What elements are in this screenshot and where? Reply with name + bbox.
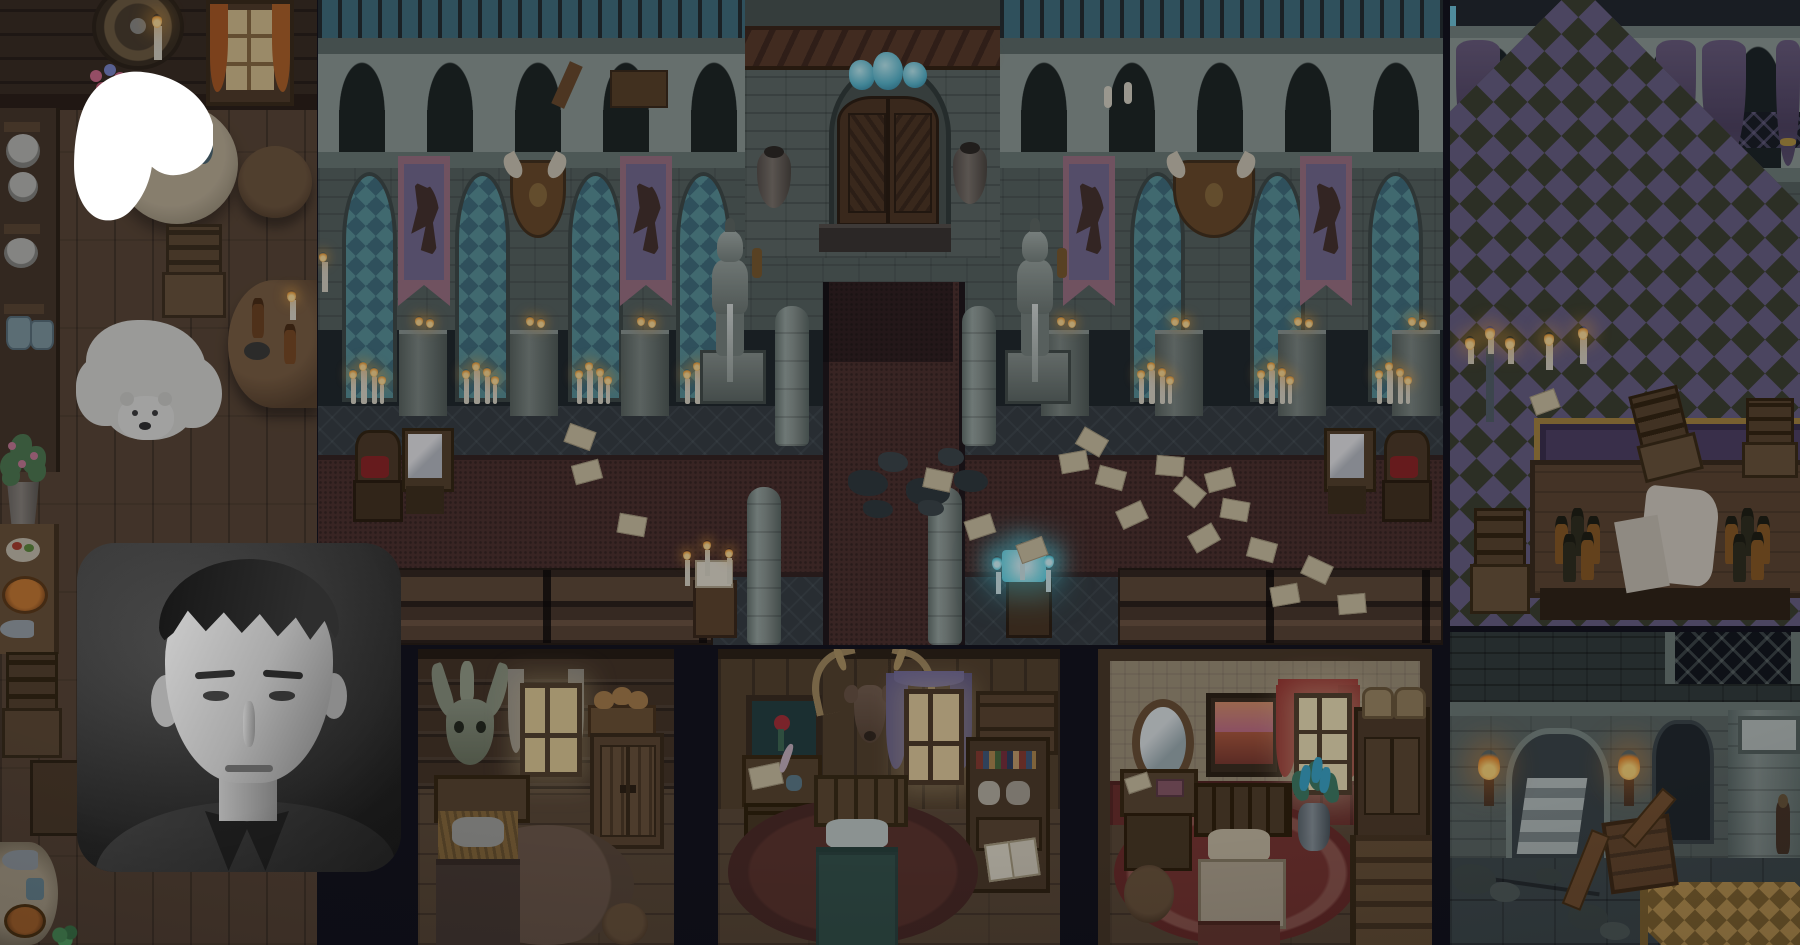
tavern-window-panes (226, 10, 274, 90)
tavern-table-bottom (0, 842, 58, 945)
knight-mace (752, 248, 762, 278)
hall-candlestick (1139, 378, 1144, 404)
hall-candlestick (493, 384, 497, 404)
glow-lectern-candle (1046, 570, 1051, 592)
rose-stem (778, 729, 784, 751)
hall-candle-flame (1147, 361, 1155, 371)
knight-helmet (1022, 230, 1048, 262)
stag-open-book (984, 838, 1038, 879)
hall-wall-pier (399, 330, 447, 416)
hall-wall-pier (621, 330, 669, 416)
hall-window (455, 172, 510, 402)
hall-candle-flame (1385, 361, 1393, 371)
hall-candlestick (1160, 376, 1165, 404)
tavern-wall-candle (154, 26, 162, 60)
tavern-chair2-back (6, 652, 58, 714)
hall-candle-flame (1396, 367, 1404, 377)
lodge-blanket (436, 859, 520, 945)
dungeon-broken-crate (1576, 800, 1668, 896)
hall-tower-urn (757, 150, 791, 208)
tavern-stool (238, 146, 312, 218)
lectern-candle (685, 560, 690, 586)
hall-banner (1063, 156, 1115, 306)
hall-candlestick (598, 376, 603, 404)
hall-candlestick (1259, 378, 1264, 404)
library-drape-tie (1780, 138, 1796, 146)
hall-pillar (775, 306, 809, 446)
lodge-top-beam (418, 649, 674, 659)
tavern-chair2-seat (2, 708, 62, 758)
lectern-flame (725, 548, 733, 558)
bear-rug-ear (120, 392, 134, 406)
lectern-candle (705, 550, 710, 576)
banner-panel-library (1450, 0, 1800, 626)
tavern-bottle (252, 298, 264, 338)
tavern-chair-2 (0, 652, 62, 764)
tavern-mug (6, 316, 32, 350)
lodge-dragon-skull (432, 663, 508, 767)
hall-candlestick (1288, 384, 1292, 404)
tavern-window (206, 0, 294, 106)
tavern-bear-rug (76, 296, 222, 442)
hall-pier-flame (415, 316, 423, 326)
tavern-shelf-board (4, 304, 44, 314)
tavern-wall-candle-flame (152, 14, 162, 28)
lectern-flame (703, 540, 711, 550)
chairR-back (1746, 398, 1794, 448)
hall-candlestick (1269, 370, 1275, 404)
hall-pier-flame (1294, 316, 1302, 326)
lectern-flame (683, 550, 691, 560)
tavern-bottle (284, 324, 296, 364)
red-vanity (1120, 769, 1190, 869)
bread-loaf (594, 691, 614, 709)
stag-ear (844, 685, 858, 703)
chairL-back (1474, 508, 1526, 570)
hall-candle-flame (370, 367, 378, 377)
hall-candlestick (1377, 378, 1382, 404)
bear-rug-nose (139, 422, 151, 430)
plant-blossom (8, 442, 16, 450)
knight-plume (1030, 218, 1040, 232)
desk-inkpot (786, 775, 802, 791)
hall-trophy-boss (1205, 183, 1223, 207)
hall-candle-flame (1267, 361, 1275, 371)
library-table-front (1540, 588, 1790, 620)
wardrobe-basket (1394, 687, 1426, 719)
skull-eye (476, 721, 486, 733)
lodge-cabinet (590, 733, 664, 849)
dungeon-rubble-rock (1536, 868, 1562, 884)
hall-candle-flame (596, 367, 604, 377)
hall-candlestick (372, 376, 377, 404)
knight-plume (725, 218, 735, 232)
hall-candlestick (1280, 376, 1285, 404)
hall-wall-pier (510, 330, 558, 416)
library-chair-right (1738, 398, 1796, 474)
hall-candlestick (587, 370, 593, 404)
chair-cushion (1390, 456, 1418, 478)
hall-candle-flame (483, 367, 491, 377)
hall-candle-flame (585, 361, 593, 371)
hall-candlestick (485, 376, 490, 404)
candelabrum-flame (1465, 336, 1475, 350)
tavern-veggie (24, 544, 34, 552)
hall-scattered-paper (1155, 455, 1185, 477)
hall-candlestick (1387, 370, 1393, 404)
patreon-logo-icon[interactable] (73, 70, 213, 222)
library-wine-bottle (1581, 532, 1594, 580)
tavern-shield-boss (130, 18, 146, 34)
hall-door-carving (894, 113, 932, 213)
hall-arcade (1000, 54, 1443, 152)
plant-blossom (30, 452, 38, 460)
hall-pier-flame (1068, 318, 1076, 328)
stag-bed (814, 775, 900, 945)
hall-wall-candle-flame (319, 252, 327, 262)
hall-door-seam (886, 99, 890, 223)
dungeon-top-window (1665, 632, 1800, 684)
tavern-plate-stack (4, 238, 38, 268)
hall-tower-top (745, 0, 1000, 26)
candelabrum-flame (1485, 326, 1495, 340)
stag-window-glow (904, 689, 964, 785)
library-floor-candle (1580, 338, 1587, 364)
mirror-glass (1330, 434, 1364, 478)
hall-candle-flame (491, 375, 499, 385)
hall-pier-flame (648, 318, 656, 328)
tavern-left-shelf (0, 108, 60, 472)
hall-pews (1118, 568, 1443, 645)
library-floor-candle-flame (1544, 332, 1554, 346)
creator-avatar[interactable] (77, 543, 401, 872)
tavern-sprout (52, 920, 78, 945)
vanity-box (1156, 779, 1184, 797)
library-floor-candle-flame (1578, 326, 1588, 340)
hall-arcade-arches (318, 54, 745, 110)
hall-tower-urn (953, 146, 987, 204)
tavern-shelf-board (4, 224, 40, 234)
tavern-table-2 (228, 280, 317, 408)
hall-pier-flame (637, 316, 645, 326)
hall-glass-strip-right (1000, 0, 1443, 38)
hall-candle-flame (378, 375, 386, 385)
hall-door-tower (745, 0, 1000, 258)
hall-candle-flame (1158, 367, 1166, 377)
tavern-fish-plate (2, 850, 38, 870)
banner-panel-great-hall (318, 0, 1443, 645)
hall-gallery-bone (1124, 82, 1132, 104)
stag-blanket (816, 847, 898, 945)
mirror-base (406, 486, 444, 514)
tavern-plate-stack (8, 172, 38, 202)
hall-candle-flame (575, 369, 583, 379)
knight-mace (1057, 248, 1067, 278)
patreon-cover-header (0, 0, 1800, 945)
wardrobe-door (1392, 737, 1420, 815)
hall-carpet-top-shade (823, 282, 953, 362)
tavern-table-plate (244, 342, 270, 360)
hall-pier-flame (1182, 318, 1190, 328)
hall-candlestick (1149, 370, 1155, 404)
hall-pier-flame (526, 316, 534, 326)
hall-candle-flame (1375, 369, 1383, 379)
candelabrum-stem (1486, 348, 1494, 422)
banner-panel-lodge-bedroom (418, 649, 674, 945)
open-book-right (1008, 837, 1041, 879)
hall-candlestick (351, 378, 356, 404)
tavern-stew-bowl (2, 576, 48, 614)
hall-door-carving (848, 113, 886, 213)
dungeon-sconce (1776, 802, 1790, 854)
hall-pier-flame (537, 318, 545, 328)
knight-pedestal (700, 350, 766, 404)
lodge-pillow (452, 817, 504, 847)
plant-blossom (18, 460, 26, 468)
hall-candle-flame (1257, 369, 1265, 379)
hall-pews (395, 568, 713, 645)
bear-rug-eye (152, 410, 158, 416)
red-flower-vase (1290, 765, 1338, 851)
red-stool (1124, 865, 1174, 923)
sunset-sky (1215, 702, 1273, 736)
hall-candlestick (361, 370, 367, 404)
chairR-seat (1742, 442, 1798, 478)
stag-pillow (826, 819, 888, 849)
chair-seatbox (1382, 480, 1432, 522)
hall-gallery-bone (1104, 86, 1112, 108)
hall-pier-flame (1408, 316, 1416, 326)
wardrobe-door (1364, 737, 1392, 815)
lodge-window-glow (520, 683, 582, 777)
red-wardrobe (1354, 707, 1430, 845)
hall-rubble-rock (954, 470, 988, 492)
hall-red-chair (351, 430, 399, 516)
hall-candle-flame (1278, 367, 1286, 377)
hall-red-chair (1380, 430, 1428, 516)
avatar-shade (77, 543, 401, 872)
hall-door-gems (873, 52, 903, 90)
hall-candlestick (1168, 384, 1172, 404)
bear-rug-eye (132, 410, 138, 416)
bread-loaf (628, 691, 648, 709)
skull-head (446, 699, 494, 765)
hall-tower-urn-mouth (960, 142, 980, 154)
vanity-legs (1124, 813, 1192, 871)
hall-candle-flame (462, 369, 470, 379)
hall-pier-flame (1171, 316, 1179, 326)
candelabrum-candle (1468, 348, 1474, 364)
glow-lectern-flame (1044, 554, 1054, 568)
wardrobe-basket (1362, 687, 1394, 719)
shelf-jar (978, 781, 1000, 805)
stag-nose (864, 731, 876, 741)
hall-banner (398, 156, 450, 306)
hall-arcade (318, 54, 745, 152)
knight-pedestal (1005, 350, 1071, 404)
stag-curtain-swag (894, 671, 964, 687)
mirror-base (1328, 486, 1366, 514)
dungeon-torch-flame (1478, 750, 1500, 780)
lodge-window (514, 669, 578, 779)
sunset-land (1215, 732, 1273, 764)
tavern-curtain-right (272, 4, 290, 92)
tavern-chair-back (166, 224, 222, 278)
hall-tower-urn-mouth (764, 146, 784, 158)
hall-candle-flame (472, 361, 480, 371)
stag-window (894, 677, 964, 787)
library-wine-bottle (1563, 534, 1576, 582)
hall-banner (620, 156, 672, 306)
lectern-candle (727, 558, 732, 584)
knight-sword (727, 304, 733, 382)
red-sunset-picture (1206, 693, 1282, 777)
hall-banner (1300, 156, 1352, 306)
red-bed-pillow (1208, 829, 1270, 863)
hall-candlestick (380, 384, 384, 404)
hall-candlestick (1406, 384, 1410, 404)
tavern-veggie (12, 542, 22, 550)
hall-candle-flame (604, 375, 612, 385)
hall-mirror-stand (1322, 428, 1372, 514)
tavern-table-candle (290, 300, 296, 320)
hall-wall-candle (322, 262, 328, 292)
banner-panel-dungeon (1450, 632, 1800, 945)
dungeon-torch-bracket (1484, 776, 1494, 806)
hall-door-step (819, 224, 951, 252)
hall-candlestick (685, 378, 690, 404)
tavern-plate-stack (6, 134, 40, 168)
hall-candlestick (606, 384, 610, 404)
hall-door-gems (903, 62, 927, 88)
hall-rubble-rock (938, 448, 964, 466)
lodge-bed (434, 775, 522, 945)
banner-panel-red-bedroom (1098, 649, 1432, 945)
plant-leaves (28, 462, 46, 482)
hall-arcade-columns (318, 110, 745, 152)
hall-rubble-rock (878, 452, 908, 472)
hall-candle-flame (1166, 375, 1174, 385)
shelf-books (976, 751, 1036, 769)
dungeon-sconce-hook (1778, 794, 1788, 808)
hall-candle-flame (1404, 375, 1412, 385)
tavern-potted-plant (0, 434, 46, 538)
hall-pillar (962, 306, 996, 446)
candelabrum-flame (1505, 336, 1515, 350)
red-bed-mattress (1198, 859, 1286, 929)
cabinet-knob (630, 785, 636, 793)
chair-seatbox (353, 480, 403, 522)
hall-trophy-boss (529, 183, 547, 207)
hall-pillar (747, 487, 781, 645)
knight-sword (1032, 304, 1038, 382)
skull-eye (454, 721, 464, 733)
hall-arcade-arches (1000, 54, 1443, 110)
library-wine-bottle (1751, 532, 1764, 580)
hall-window (342, 172, 397, 402)
hall-lectern-wood (683, 552, 741, 632)
hall-rubble-rock (863, 500, 893, 518)
hall-candlestick (464, 378, 469, 404)
knight-helmet (717, 230, 743, 262)
dungeon-rubble-rock (1600, 922, 1630, 940)
hall-scattered-paper (1337, 593, 1367, 615)
bear-rug-ear (158, 392, 172, 406)
hall-knight-statue (1005, 212, 1065, 398)
hall-door-gems (849, 60, 875, 90)
hall-rubble-rock (848, 470, 888, 496)
hall-pier-flame (1419, 318, 1427, 328)
skull-antler-mid (460, 661, 474, 701)
library-top-band (1450, 0, 1800, 26)
lectern-body (693, 580, 737, 638)
mirror-glass (408, 434, 442, 478)
hall-candle-flame (1137, 369, 1145, 379)
hall-candle-flame (349, 369, 357, 379)
cabinet-knob (620, 785, 626, 793)
library-candelabrum (1464, 330, 1516, 422)
dungeon-rubble-rock (1490, 882, 1520, 902)
hall-pier-flame (1305, 318, 1313, 328)
hall-candlestick (1398, 376, 1403, 404)
tavern-fish (0, 620, 34, 638)
tavern-mug-small (26, 878, 44, 900)
red-bed-foot (1198, 921, 1280, 945)
library-chair-left (1466, 508, 1528, 612)
hall-mirror-stand (400, 428, 450, 514)
library-floor-candle (1546, 344, 1553, 370)
hall-pier-flame (426, 318, 434, 328)
glow-lectern-flame (992, 556, 1002, 570)
hall-candlestick (577, 378, 582, 404)
glow-lectern-candle (996, 572, 1001, 594)
vase-pot (1298, 803, 1330, 851)
hall-double-door (837, 96, 939, 226)
banner-panel-stag-bedroom (718, 649, 1060, 945)
candelabrum-candle (1508, 348, 1514, 364)
hall-gallery-crate (610, 70, 668, 108)
red-stairs (1350, 835, 1432, 945)
hall-candlestick (474, 370, 480, 404)
hall-rubble-rock (918, 500, 944, 516)
hall-arcade-columns (1000, 110, 1443, 152)
tavern-plate-veggies (6, 538, 40, 562)
hall-candle-flame (1286, 375, 1294, 385)
hall-knight-statue (700, 212, 760, 398)
lodge-bread-basket (588, 689, 650, 731)
chairL-seat (1470, 564, 1530, 614)
dungeon-torch-flame (1618, 750, 1640, 780)
library-wine-bottle (1733, 534, 1746, 582)
vase-flower (1298, 764, 1312, 791)
tavern-table-food (0, 524, 59, 654)
candelabrum-candle (1488, 338, 1494, 354)
tavern-shelf-board (4, 122, 40, 132)
tavern-mug (30, 320, 54, 350)
chair-cushion (361, 456, 389, 478)
shelf-jar (1006, 781, 1030, 805)
lodge-stool (602, 903, 648, 945)
tavern-table-candle-flame (287, 290, 296, 302)
tavern-stew-plate (4, 904, 46, 938)
hall-window (568, 172, 623, 402)
hall-candle-flame (359, 361, 367, 371)
hall-glass-strip-left (318, 0, 745, 38)
red-bed (1194, 783, 1284, 945)
dungeon-sign (1738, 716, 1800, 754)
hall-candle-flame (683, 369, 691, 379)
